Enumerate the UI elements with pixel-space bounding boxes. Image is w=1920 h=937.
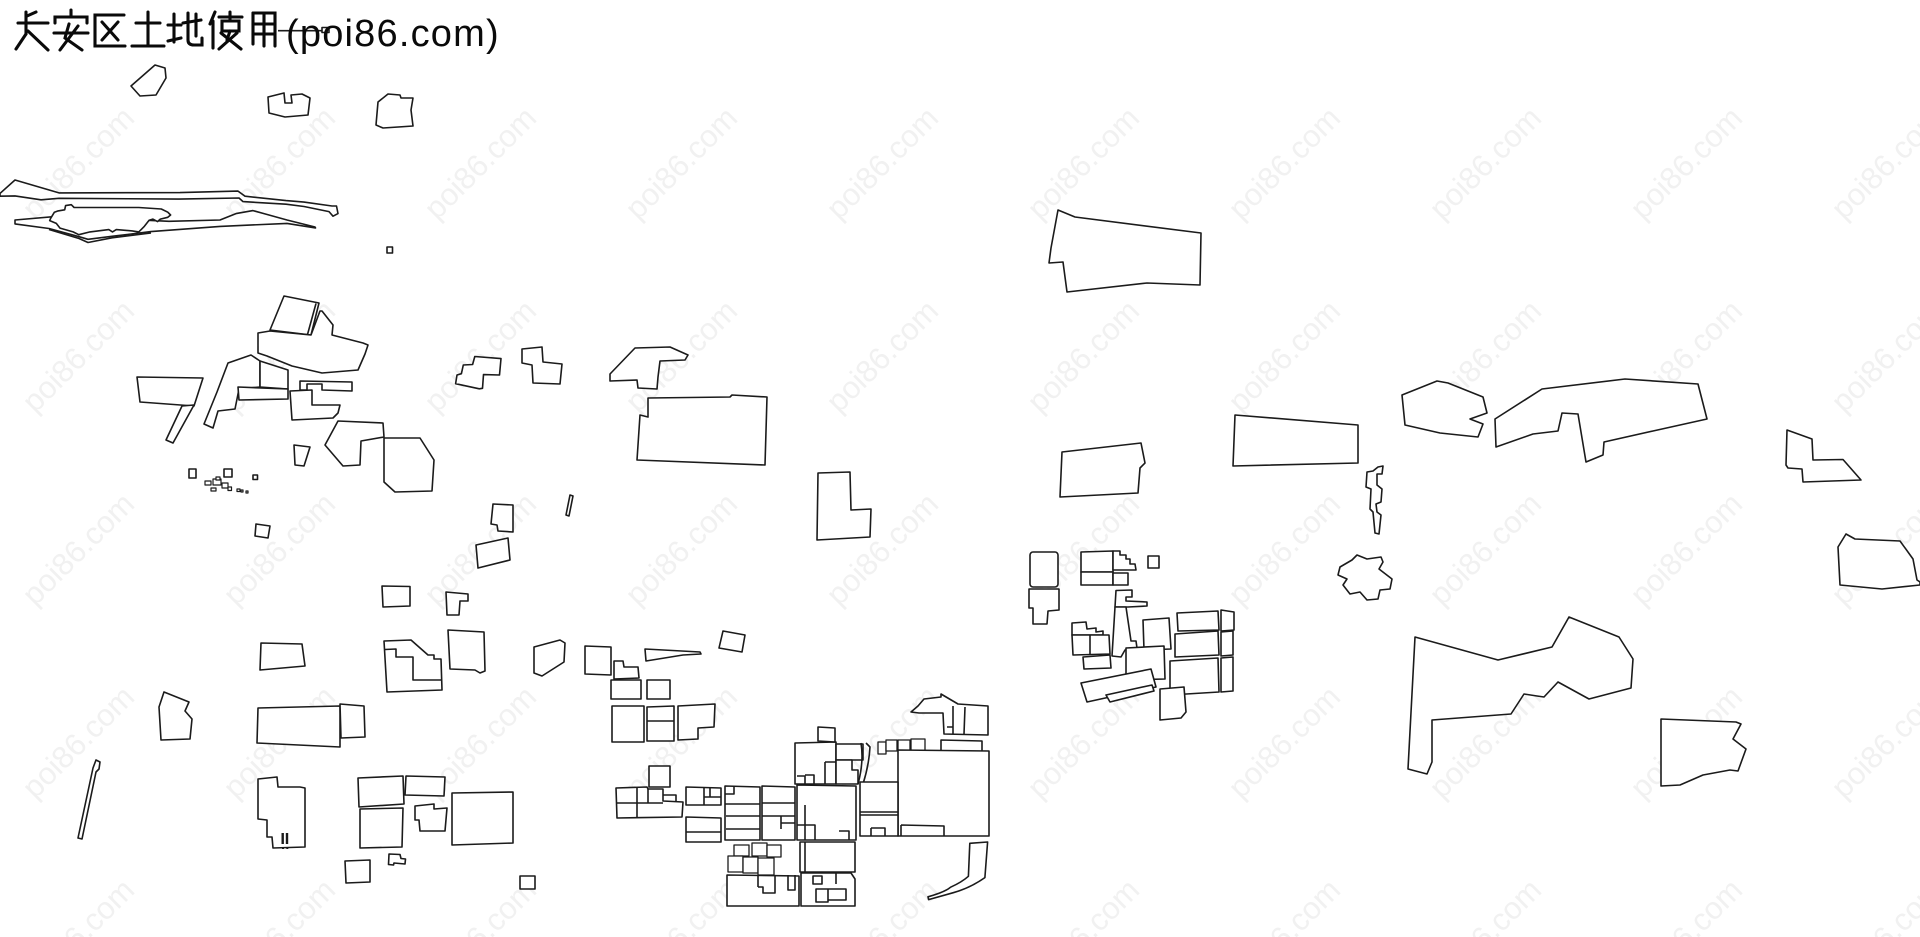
svg-text:(poi86.com): (poi86.com): [286, 13, 500, 55]
